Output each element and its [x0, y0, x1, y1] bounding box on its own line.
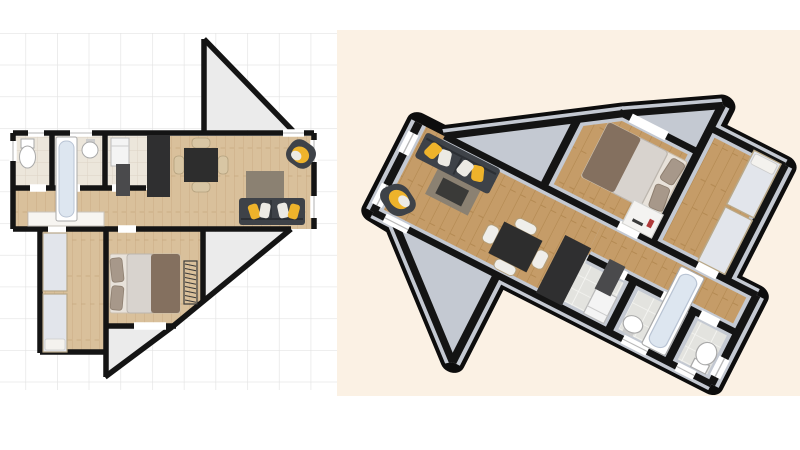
floorplan-export-canvas — [0, 0, 800, 450]
scene-canvas[interactable] — [0, 0, 800, 450]
pillow — [110, 257, 124, 282]
pillow — [45, 339, 65, 350]
dining-chair[interactable] — [174, 156, 184, 174]
single-bed[interactable] — [43, 294, 67, 352]
dining-chair[interactable] — [218, 156, 228, 174]
appliance[interactable] — [111, 138, 129, 166]
dining-table[interactable] — [184, 148, 218, 182]
cabinet-dark[interactable] — [116, 164, 130, 196]
double-bed[interactable] — [110, 254, 180, 313]
kitchen-counter[interactable] — [147, 135, 170, 197]
pillow — [110, 286, 124, 311]
duvet-light — [127, 254, 153, 313]
duvet-brown — [151, 254, 180, 313]
wardrobe-unit[interactable] — [43, 233, 67, 291]
dining-chair[interactable] — [192, 138, 210, 148]
bathtub[interactable] — [56, 137, 77, 221]
rug[interactable] — [246, 171, 284, 198]
sofa[interactable] — [239, 198, 305, 225]
dining-chair[interactable] — [192, 182, 210, 192]
toilet[interactable] — [20, 139, 36, 168]
